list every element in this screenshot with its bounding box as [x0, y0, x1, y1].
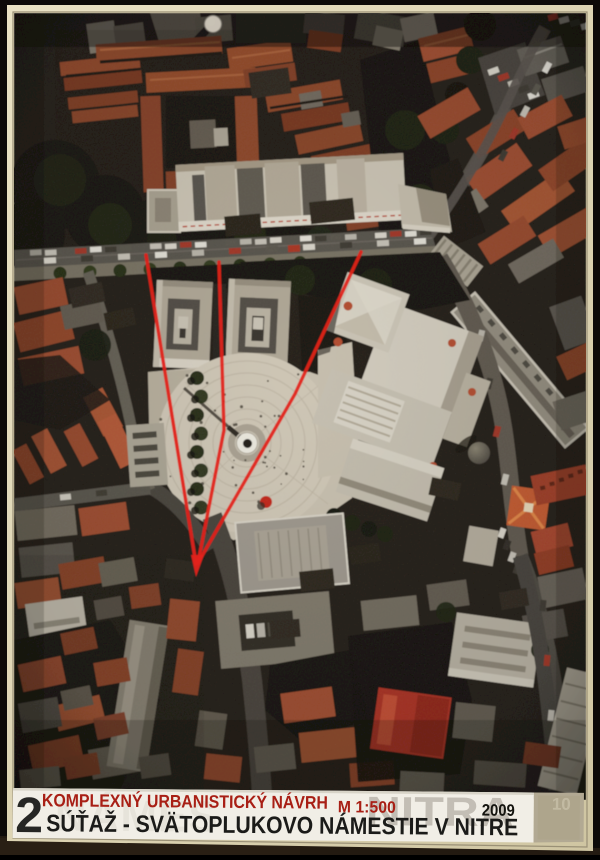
svg-text:SÚŤAŽ - SVÄTOPLUKOVO NÁMESTIE: SÚŤAŽ - SVÄTOPLUKOVO NÁMESTIE V NITRE [46, 809, 518, 841]
svg-text:2: 2 [15, 787, 43, 843]
svg-text:2009: 2009 [482, 802, 515, 820]
svg-text:KOMPLEXNÝ URBANISTICKÝ NÁVRH: KOMPLEXNÝ URBANISTICKÝ NÁVRH [42, 789, 328, 812]
svg-text:10: 10 [552, 795, 571, 814]
